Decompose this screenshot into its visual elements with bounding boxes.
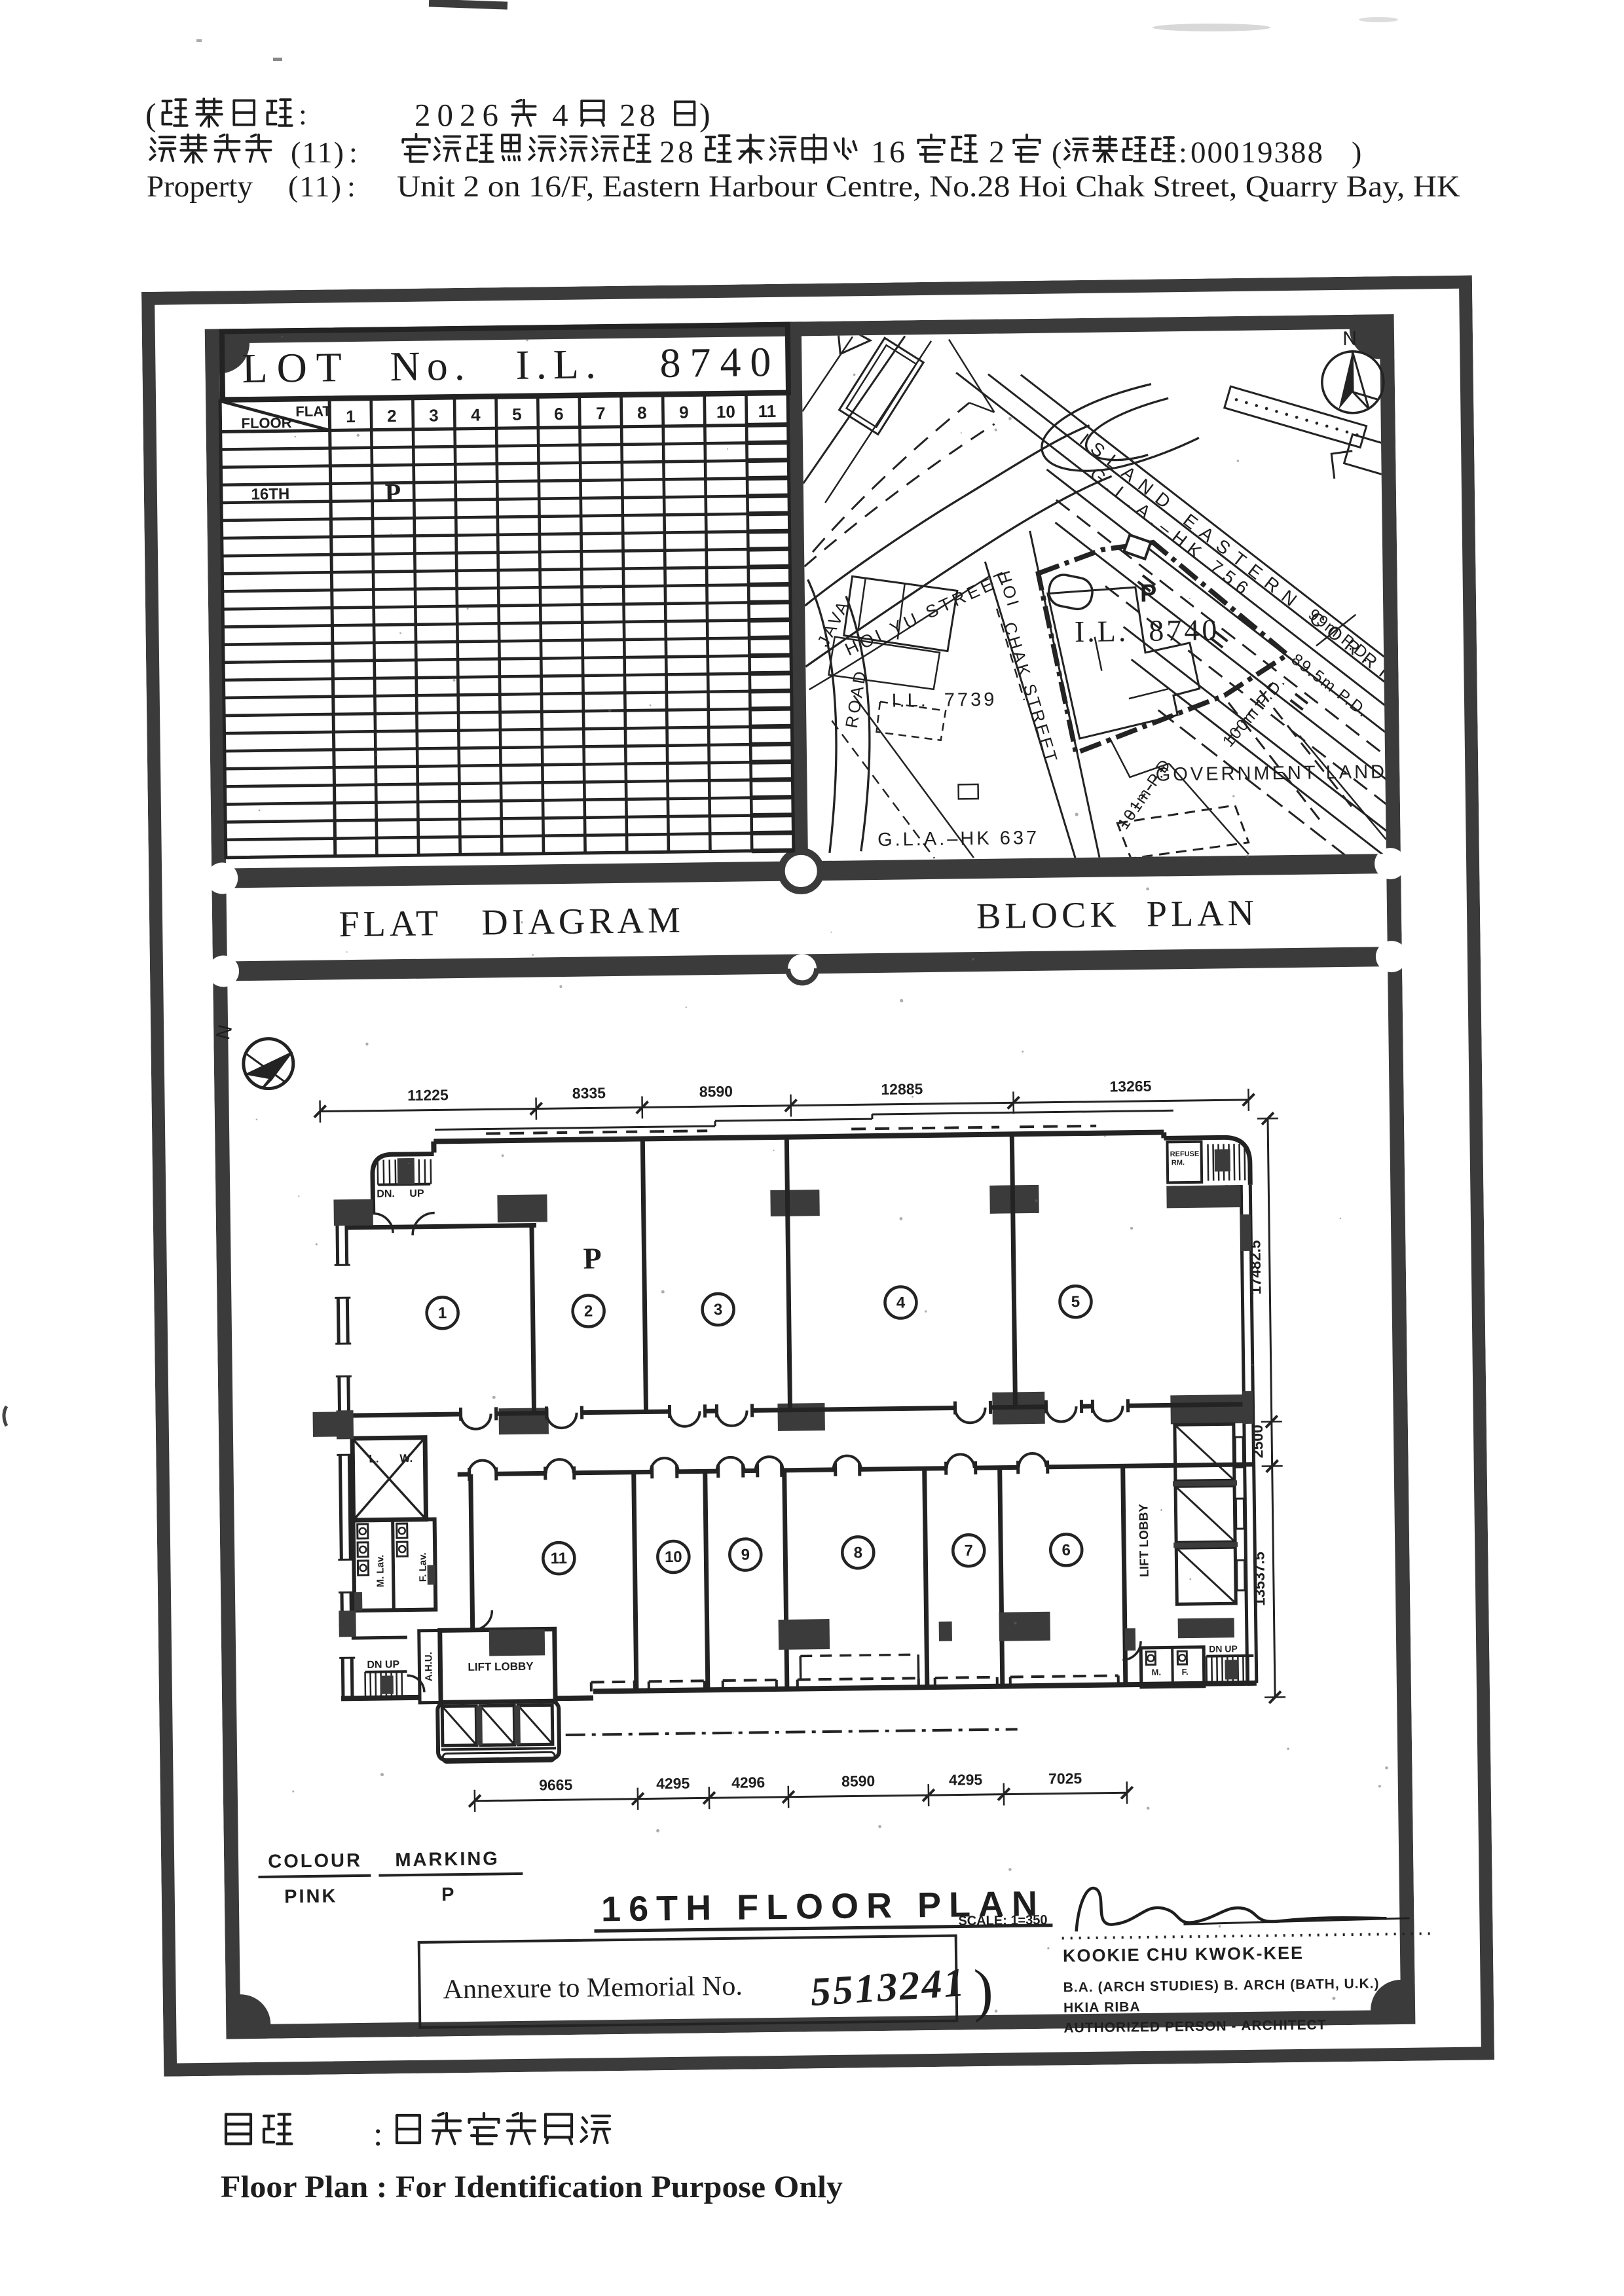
svg-text:FLAT DIAGRAM: FLAT DIAGRAM [339, 900, 684, 945]
svg-text::: : [347, 170, 356, 203]
svg-text:Property: Property [147, 170, 253, 204]
svg-text:I.L. 7739: I.L. 7739 [891, 689, 997, 712]
svg-text:REFUSE: REFUSE [1170, 1150, 1200, 1159]
svg-text:2500: 2500 [1249, 1425, 1266, 1458]
svg-text:10: 10 [665, 1548, 682, 1566]
svg-text:(11): (11) [288, 170, 342, 203]
svg-text:G.L.A.–HK 756: G.L.A.–HK 756 [1086, 464, 1257, 602]
svg-text:28: 28 [619, 97, 659, 133]
svg-text:SCALE: 1=350: SCALE: 1=350 [958, 1913, 1047, 1929]
svg-text:P: P [583, 1241, 602, 1275]
svg-text:13265: 13265 [1109, 1078, 1151, 1095]
svg-text:16TH: 16TH [251, 485, 289, 503]
svg-text:I.L.: I.L. [515, 340, 602, 388]
svg-text:DN UP: DN UP [1209, 1643, 1238, 1654]
svg-text:8590: 8590 [699, 1083, 733, 1101]
svg-text:RM.: RM. [1172, 1159, 1185, 1167]
svg-text:N: N [1342, 328, 1357, 350]
svg-text:7: 7 [596, 403, 606, 423]
svg-text:P: P [441, 1884, 454, 1905]
svg-text:8: 8 [853, 1544, 862, 1561]
svg-text:5513241: 5513241 [809, 1960, 967, 2014]
svg-text:LIFT LOBBY: LIFT LOBBY [468, 1660, 534, 1673]
svg-text:4295: 4295 [656, 1775, 690, 1793]
svg-text:8590: 8590 [841, 1772, 875, 1790]
svg-text:2026: 2026 [415, 97, 505, 133]
svg-text:9: 9 [679, 403, 689, 422]
svg-text:F.: F. [1182, 1667, 1189, 1677]
svg-text:Floor Plan : For Identificatio: Floor Plan : For Identification Purpose … [221, 2170, 843, 2204]
svg-text:M. Lav.: M. Lav. [375, 1555, 386, 1588]
svg-text:): ) [699, 96, 710, 133]
svg-text:7025: 7025 [1048, 1770, 1082, 1787]
svg-text:Annexure to Memorial No.: Annexure to Memorial No. [443, 1971, 743, 2005]
svg-text::: : [299, 98, 307, 131]
svg-text:9: 9 [741, 1546, 750, 1563]
svg-text:9665: 9665 [539, 1776, 573, 1794]
svg-text:4: 4 [471, 405, 481, 425]
svg-text:A.H.U.: A.H.U. [423, 1652, 435, 1681]
svg-text:HKIA RIBA: HKIA RIBA [1063, 1999, 1141, 2015]
svg-text:4296: 4296 [731, 1774, 765, 1791]
svg-text:3: 3 [714, 1301, 723, 1319]
svg-text:L.: L. [369, 1453, 378, 1465]
svg-text:11: 11 [551, 1550, 568, 1567]
svg-text:KOOKIE CHU KWOK-KEE: KOOKIE CHU KWOK-KEE [1063, 1943, 1304, 1966]
svg-text:I.L. 8740: I.L. 8740 [1075, 613, 1220, 648]
svg-text:8740: 8740 [659, 338, 781, 386]
svg-text:CHAK: CHAK [1000, 620, 1035, 681]
svg-text:4: 4 [552, 97, 568, 133]
svg-text:99m P.D.: 99m P.D. [1305, 605, 1377, 666]
svg-text:4295: 4295 [949, 1771, 983, 1789]
svg-text:5: 5 [1071, 1293, 1080, 1311]
svg-text:FLAT: FLAT [295, 403, 331, 420]
svg-text:12885: 12885 [881, 1080, 923, 1098]
svg-text:M.: M. [1152, 1667, 1162, 1677]
svg-text:5: 5 [512, 405, 522, 424]
svg-text:13537.5: 13537.5 [1250, 1552, 1268, 1607]
svg-text:COLOUR: COLOUR [268, 1850, 362, 1872]
svg-text:7: 7 [964, 1542, 973, 1559]
svg-text:MARKING: MARKING [395, 1848, 500, 1870]
svg-text:BLOCK PLAN: BLOCK PLAN [976, 893, 1259, 937]
svg-text:6: 6 [554, 404, 564, 424]
svg-text:FLOOR: FLOOR [241, 414, 291, 431]
svg-text:Unit 2 on 16/F, Eastern Harbou: Unit 2 on 16/F, Eastern Harbour Centre, … [397, 170, 1460, 204]
svg-text:DN UP: DN UP [367, 1659, 399, 1671]
svg-text:P: P [1140, 580, 1157, 608]
svg-text:8: 8 [637, 403, 647, 422]
svg-text:LOT: LOT [242, 344, 351, 392]
svg-text:(: ( [145, 96, 157, 133]
svg-text:1: 1 [346, 407, 356, 426]
svg-text:UP: UP [409, 1188, 424, 1199]
svg-text:DN.: DN. [377, 1188, 395, 1199]
svg-text:LIFT LOBBY: LIFT LOBBY [1137, 1504, 1151, 1577]
svg-text:11: 11 [758, 401, 776, 421]
svg-text:4: 4 [896, 1294, 906, 1311]
svg-text:2: 2 [584, 1302, 593, 1320]
svg-text:F. Lav.: F. Lav. [417, 1552, 429, 1582]
svg-text:2: 2 [387, 406, 397, 426]
svg-text:STREET: STREET [1020, 682, 1062, 767]
svg-text:6: 6 [1061, 1541, 1071, 1559]
svg-text:): ) [973, 1958, 993, 2023]
svg-text:11225: 11225 [407, 1086, 449, 1104]
svg-text:3: 3 [429, 405, 439, 425]
svg-text:B.A. (ARCH STUDIES) B. ARCH (B: B.A. (ARCH STUDIES) B. ARCH (BATH, U.K.) [1063, 1976, 1380, 1995]
svg-text:HOI YU STREET: HOI YU STREET [842, 567, 1012, 659]
svg-text:10: 10 [716, 402, 735, 422]
svg-text:P: P [384, 478, 401, 507]
svg-text:No.: No. [390, 342, 471, 390]
svg-text:1: 1 [438, 1304, 447, 1322]
svg-text:8335: 8335 [572, 1084, 606, 1102]
svg-text::: : [373, 2116, 382, 2153]
svg-text:PINK: PINK [284, 1886, 338, 1907]
svg-text:GOVERNMENT LAND: GOVERNMENT LAND [1156, 761, 1388, 785]
svg-text:G.L.A.–HK 637: G.L.A.–HK 637 [877, 828, 1039, 850]
svg-text:W.: W. [399, 1452, 413, 1465]
